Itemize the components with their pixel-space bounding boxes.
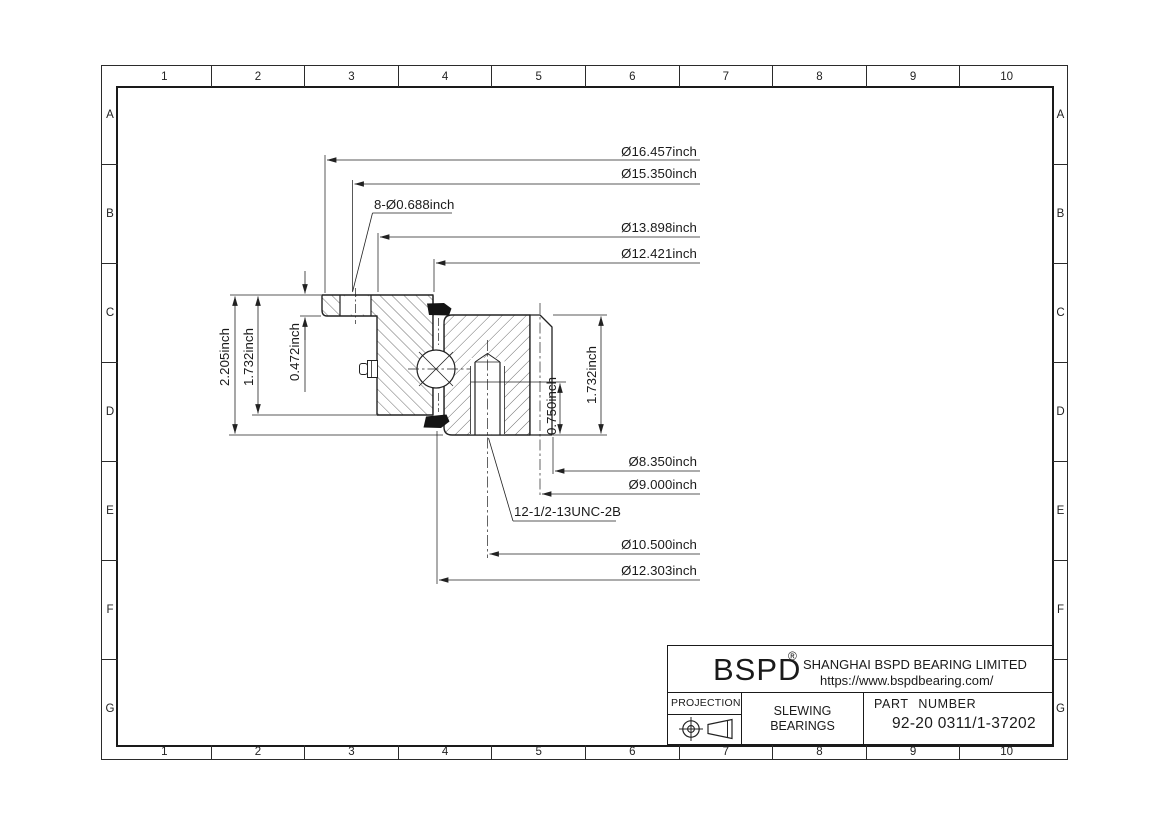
projection-cell: PROJECTION	[668, 693, 742, 744]
dim-bore-diameter: Ø8.350inch	[577, 454, 697, 469]
dim-inner-ring-height: 1.732inch	[584, 315, 602, 435]
projection-label: PROJECTION	[671, 697, 741, 709]
product-name-line1: SLEWING	[774, 704, 832, 719]
dim-outer-diameter: Ø16.457inch	[577, 144, 697, 159]
projection-divider	[668, 714, 741, 715]
flange-bolt-hole	[340, 288, 371, 324]
title-block: BSPD ® SHANGHAI BSPD BEARING LIMITED htt…	[667, 645, 1053, 745]
first-angle-projection-icon	[674, 716, 738, 742]
dim-thread-depth: 0.750inch	[544, 346, 562, 466]
dim-overall-height: 2.205inch	[217, 297, 235, 417]
dim-raceway-diameter-upper: Ø12.421inch	[577, 246, 697, 261]
product-cell: SLEWING BEARINGS	[742, 693, 864, 744]
dim-inner-step-diameter: Ø9.000inch	[577, 477, 697, 492]
company-name: SHANGHAI BSPD BEARING LIMITED	[803, 657, 1027, 672]
dim-tapped-bolt-circle: Ø10.500inch	[577, 537, 697, 552]
grease-fitting	[360, 361, 378, 378]
part-number-cell: PART NUMBER 92-20 0311/1-37202	[864, 693, 1053, 744]
dim-flange-bolt-circle: Ø15.350inch	[577, 166, 697, 181]
company-website: https://www.bspdbearing.com/	[820, 673, 993, 688]
dim-flange-holes: 8-Ø0.688inch	[374, 197, 454, 212]
registered-trademark: ®	[788, 649, 797, 663]
dim-flange-thickness: 0.472inch	[287, 292, 305, 412]
dim-flange-inner-diameter: Ø13.898inch	[577, 220, 697, 235]
part-number-label: PART NUMBER	[874, 697, 976, 711]
part-number-value: 92-20 0311/1-37202	[892, 715, 1036, 733]
dim-raceway-diameter-lower: Ø12.303inch	[577, 563, 697, 578]
title-block-header: BSPD ® SHANGHAI BSPD BEARING LIMITED htt…	[668, 646, 1052, 693]
seal-top	[427, 303, 452, 316]
outer-ring-section	[322, 295, 433, 415]
dim-tapped-holes: 12-1/2-13UNC-2B	[514, 504, 621, 519]
product-name-line2: BEARINGS	[770, 719, 835, 734]
dim-outer-ring-height: 1.732inch	[241, 297, 259, 417]
